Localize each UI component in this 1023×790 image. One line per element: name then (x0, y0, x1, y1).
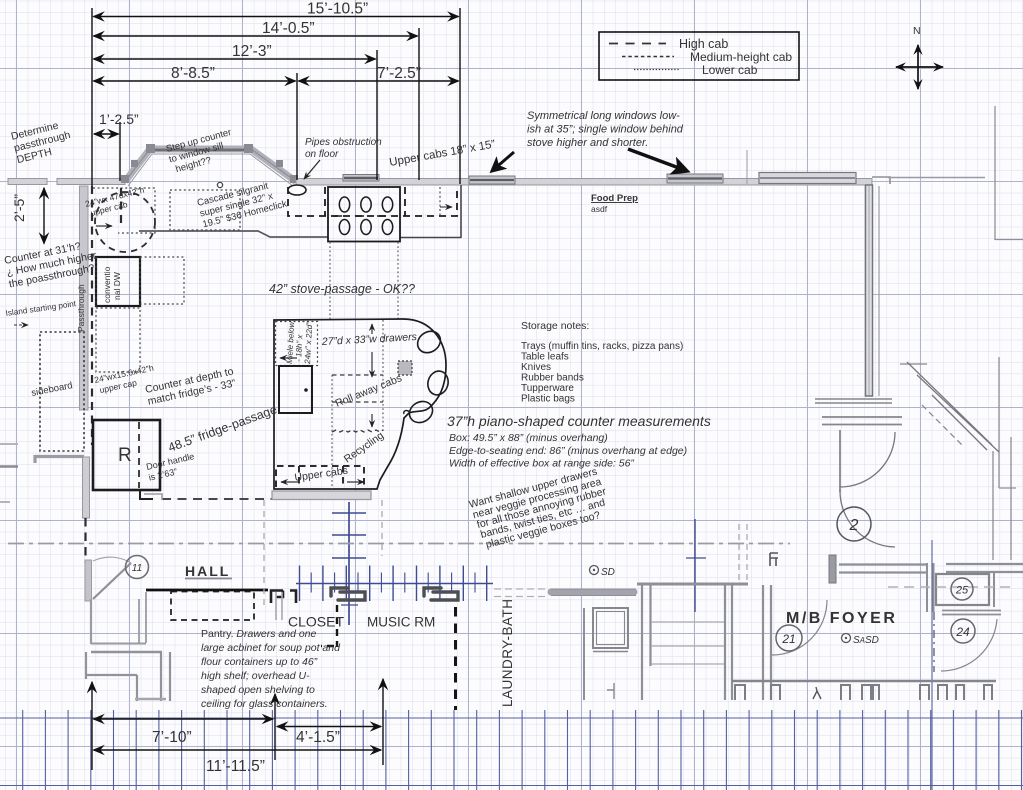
svg-text:Tupperware: Tupperware (521, 383, 574, 394)
svg-text:14’-0.5”: 14’-0.5” (262, 20, 315, 37)
svg-text:HALL: HALL (185, 563, 230, 579)
svg-text:Storage notes:: Storage notes: (521, 320, 589, 332)
svg-text:2’-5”: 2’-5” (11, 194, 27, 222)
svg-text:15’-10.5”: 15’-10.5” (307, 1, 368, 18)
svg-text:Table leafs: Table leafs (521, 352, 569, 363)
svg-text:42” stove-passage - OK??: 42” stove-passage - OK?? (269, 282, 415, 296)
svg-text:Plastic bags: Plastic bags (521, 394, 575, 405)
svg-text:CLOSET: CLOSET (288, 614, 344, 630)
svg-text:11: 11 (132, 563, 142, 574)
svg-text:Pantry. Drawers and one: Pantry. Drawers and one (201, 628, 317, 640)
svg-text:25: 25 (955, 585, 969, 597)
svg-text:Medium-height cab: Medium-height cab (690, 50, 792, 64)
svg-text:24: 24 (955, 625, 970, 639)
svg-text:ish at 35”; single window behi: ish at 35”; single window behind (527, 124, 684, 136)
svg-text:Rubber bands: Rubber bands (521, 373, 584, 384)
svg-text:8’-8.5”: 8’-8.5” (171, 65, 215, 82)
svg-text:Knives: Knives (521, 362, 551, 373)
svg-text:SD: SD (601, 567, 615, 578)
svg-text:2: 2 (849, 517, 859, 534)
svg-text:R: R (118, 445, 132, 466)
svg-text:Food Prep: Food Prep (591, 193, 638, 204)
svg-text:nal DW: nal DW (112, 272, 122, 300)
svg-text:Lower cab: Lower cab (702, 63, 758, 77)
svg-text:MUSIC RM: MUSIC RM (367, 615, 435, 630)
svg-text:LAUNDRY-BATH: LAUNDRY-BATH (500, 598, 515, 707)
svg-text:7’-2.5”: 7’-2.5” (377, 65, 421, 82)
svg-text:stove higher and shorter.: stove higher and shorter. (527, 137, 648, 149)
svg-text:conventio: conventio (102, 266, 112, 303)
svg-text:on floor: on floor (305, 149, 339, 160)
svg-text:M/B FOYER: M/B FOYER (786, 610, 897, 627)
svg-text:37”h piano-shaped counter meas: 37”h piano-shaped counter measurements (447, 413, 711, 429)
svg-text:12’-3”: 12’-3” (232, 43, 272, 60)
svg-text:Box: 49.5” x 88” (minus overha: Box: 49.5” x 88” (minus overhang) (449, 432, 608, 444)
svg-text:1’-2.5”: 1’-2.5” (99, 111, 139, 127)
svg-text:Width of effective box at rang: Width of effective box at range side: 56… (449, 458, 634, 470)
svg-text:Passthrough: Passthrough (76, 284, 86, 332)
svg-text:asdf: asdf (591, 204, 608, 214)
svg-text:SASD: SASD (853, 635, 879, 646)
svg-text:Trays (muffin tins, racks, piz: Trays (muffin tins, racks, pizza pans) (521, 341, 683, 352)
svg-text:Edge-to-seating end: 86” (minu: Edge-to-seating end: 86” (minus overhang… (449, 445, 687, 457)
svg-text:21: 21 (781, 632, 795, 646)
svg-text:ceiling for glass containers.: ceiling for glass containers. (201, 698, 328, 710)
svg-text:7’-10”: 7’-10” (152, 729, 192, 746)
svg-text:flour containers up to 46”: flour containers up to 46” (201, 656, 318, 668)
svg-text:large acbinet for soup pot and: large acbinet for soup pot and (201, 642, 341, 654)
svg-text:4’-1.5”: 4’-1.5” (296, 729, 340, 746)
svg-text:N: N (913, 25, 921, 37)
svg-text:Pipes obstruction: Pipes obstruction (305, 137, 382, 148)
svg-text:shaped open shelving to: shaped open shelving to (201, 684, 315, 696)
svg-text:Symmetrical long windows low-: Symmetrical long windows low- (527, 110, 680, 122)
svg-text:high shelf; overhead U-: high shelf; overhead U- (201, 670, 310, 682)
svg-text:11’-11.5”: 11’-11.5” (206, 758, 265, 775)
svg-text:High cab: High cab (679, 37, 728, 51)
